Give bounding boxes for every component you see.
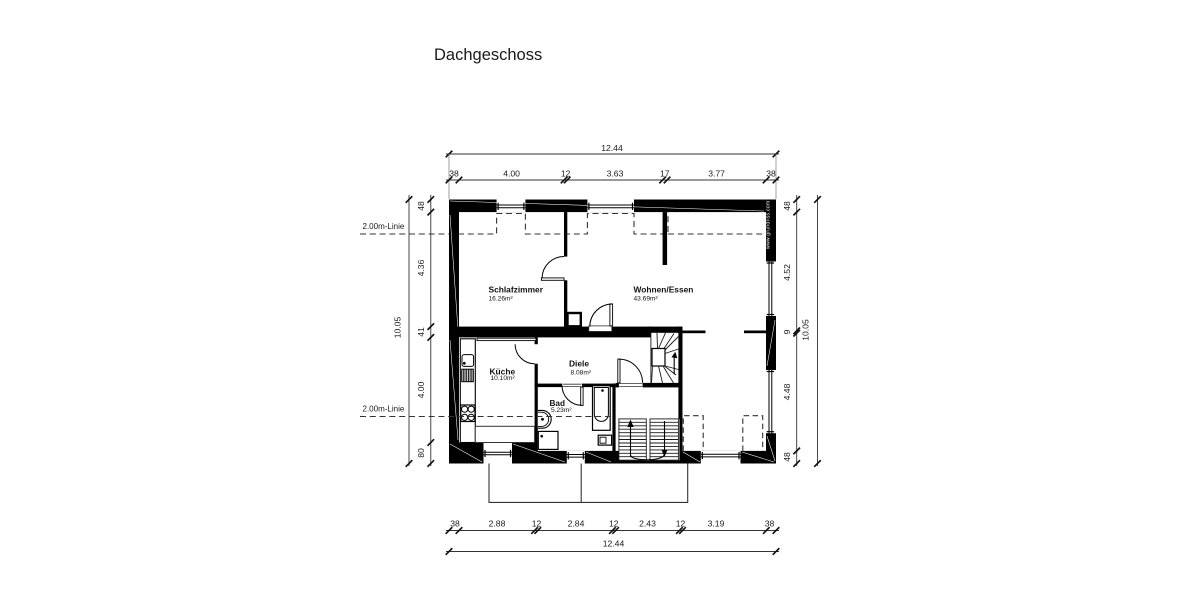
svg-text:4.36: 4.36 bbox=[416, 259, 426, 276]
svg-text:2.00m-Linie: 2.00m-Linie bbox=[363, 405, 405, 414]
svg-text:2.43: 2.43 bbox=[639, 519, 656, 529]
svg-text:10.10m²: 10.10m² bbox=[491, 375, 516, 382]
svg-text:4.00: 4.00 bbox=[416, 381, 426, 398]
svg-text:16.26m²: 16.26m² bbox=[489, 296, 514, 303]
svg-text:38: 38 bbox=[449, 169, 459, 179]
svg-text:12: 12 bbox=[561, 169, 571, 179]
svg-text:Dachgeschoss: Dachgeschoss bbox=[434, 46, 542, 64]
svg-text:2.00m-Linie: 2.00m-Linie bbox=[363, 222, 405, 231]
svg-text:4.00: 4.00 bbox=[503, 169, 520, 179]
svg-text:3.19: 3.19 bbox=[708, 519, 725, 529]
svg-text:4.48: 4.48 bbox=[782, 383, 792, 400]
svg-text:3.63: 3.63 bbox=[607, 169, 624, 179]
svg-text:17: 17 bbox=[660, 169, 670, 179]
svg-text:12.44: 12.44 bbox=[603, 539, 625, 549]
svg-text:2.84: 2.84 bbox=[568, 519, 585, 529]
svg-text:5.23m²: 5.23m² bbox=[551, 407, 572, 414]
svg-text:80: 80 bbox=[416, 448, 426, 458]
svg-text:12.44: 12.44 bbox=[601, 143, 623, 153]
svg-text:38: 38 bbox=[765, 519, 775, 529]
svg-text:10.05: 10.05 bbox=[393, 317, 403, 339]
svg-text:2.88: 2.88 bbox=[489, 519, 506, 529]
svg-text:12: 12 bbox=[676, 519, 686, 529]
svg-text:48: 48 bbox=[416, 201, 426, 211]
svg-text:48: 48 bbox=[782, 452, 792, 462]
svg-text:43.69m²: 43.69m² bbox=[634, 296, 659, 303]
svg-text:12: 12 bbox=[532, 519, 542, 529]
svg-text:12: 12 bbox=[609, 519, 619, 529]
svg-text:38: 38 bbox=[450, 519, 460, 529]
svg-text:www.grundriss.com: www.grundriss.com bbox=[765, 201, 771, 249]
svg-text:Schlafzimmer: Schlafzimmer bbox=[489, 285, 544, 295]
svg-text:41: 41 bbox=[416, 327, 426, 337]
svg-text:9: 9 bbox=[782, 329, 792, 334]
svg-text:Wohnen/Essen: Wohnen/Essen bbox=[634, 285, 694, 295]
svg-text:38: 38 bbox=[766, 169, 776, 179]
svg-text:10.05: 10.05 bbox=[801, 319, 811, 341]
svg-text:8.08m²: 8.08m² bbox=[571, 370, 592, 377]
svg-text:48: 48 bbox=[782, 201, 792, 211]
svg-text:4.52: 4.52 bbox=[782, 264, 792, 281]
svg-text:3.77: 3.77 bbox=[708, 169, 725, 179]
svg-text:Diele: Diele bbox=[569, 359, 589, 369]
